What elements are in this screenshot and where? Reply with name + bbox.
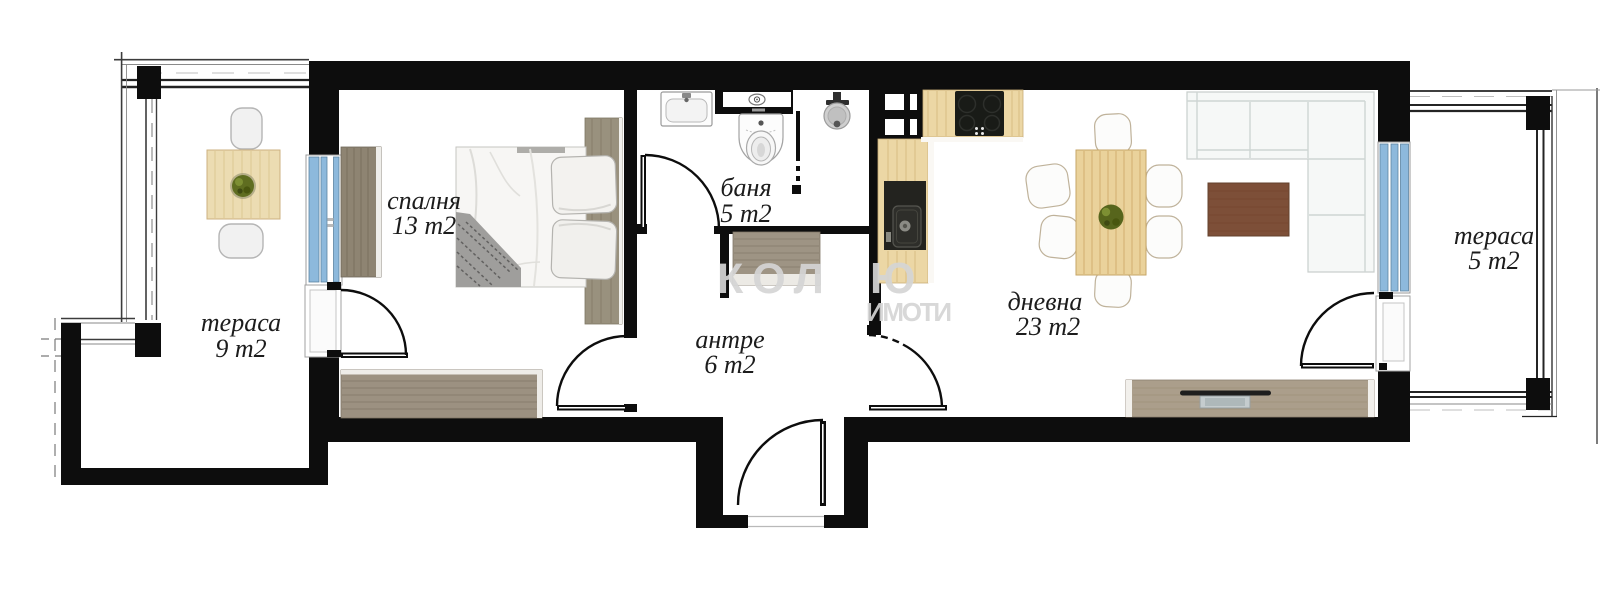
svg-text:КОЛ: КОЛ — [717, 255, 833, 303]
svg-text:6 т2: 6 т2 — [704, 350, 755, 379]
svg-text:13 т2: 13 т2 — [392, 211, 456, 240]
svg-text:ИМОТИ: ИМОТИ — [866, 297, 952, 327]
svg-text:баня: баня — [720, 173, 771, 202]
svg-text:тераса: тераса — [201, 308, 281, 337]
svg-text:23 т2: 23 т2 — [1016, 312, 1080, 341]
svg-text:9 т2: 9 т2 — [215, 334, 266, 363]
svg-text:5 т2: 5 т2 — [1468, 246, 1519, 275]
svg-text:Ю: Ю — [870, 254, 915, 303]
svg-text:5 т2: 5 т2 — [720, 199, 771, 228]
